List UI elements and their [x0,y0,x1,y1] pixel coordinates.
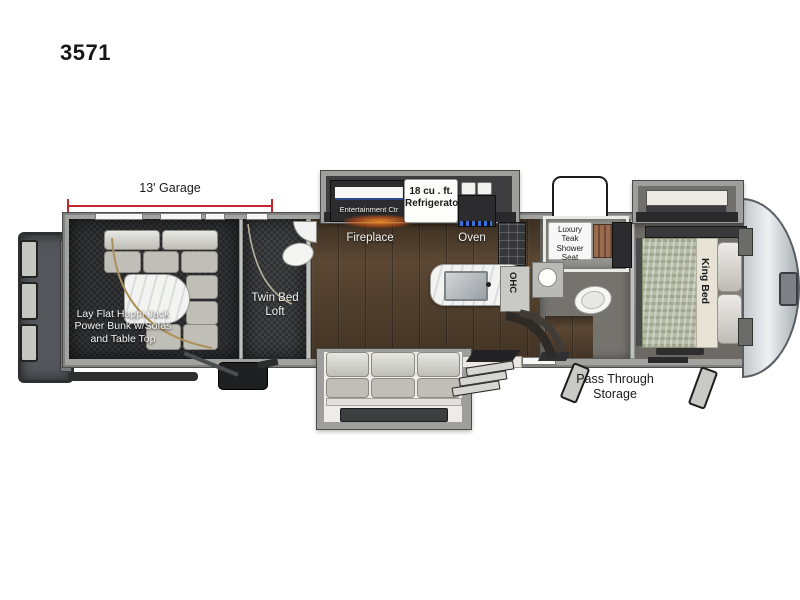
refrigerator-label: 18 cu . ft. Refrigerator [404,179,458,223]
floor-mat [538,352,570,361]
king-bed-mattress [642,238,698,348]
garage-dimension-tick-right [271,199,273,213]
faucet [486,282,491,287]
range-controls [460,221,492,226]
nightstand [738,228,753,256]
island-sink [444,271,488,301]
loft-label: Twin Bed Loft [243,292,307,319]
model-number: 3571 [60,40,150,66]
fireplace-label: Fireplace [330,232,410,246]
loft-floor [243,219,306,359]
garage-sofa-back [104,230,218,250]
sofa-slide-rug [340,408,448,422]
window-slot [205,213,225,220]
entertainment-label: Entertainment Ctr [330,206,408,215]
ohc-label: OHC [507,272,518,293]
dresser-top [646,190,728,206]
bedroom-slide-opening [636,212,738,222]
garage-side-cushions [186,275,218,325]
burner [461,182,476,195]
linen-closet [612,222,632,268]
oven-label: Oven [442,232,502,246]
floorplan-canvas: 3571 13' Garage Lay Flat Happi-Jack Powe… [0,0,800,600]
ramp-hinge [20,324,38,362]
pantry-cabinet [498,222,526,266]
ramp-bottom-rail [68,372,198,381]
window-slot [246,213,268,220]
garage-bunk-label: Lay Flat Happi-Jack Power Bunk w/Sofas a… [64,308,182,345]
nightstand [738,318,753,346]
pass-through-label: Pass Through Storage [556,372,674,402]
bath-sink [538,268,557,287]
burner [477,182,492,195]
ramp-hinge [20,240,38,278]
bedroom-rug [656,348,704,355]
shower-seat-label: Luxury Teak Shower Seat [548,222,592,260]
tv-screen [335,187,403,200]
bedroom-window-slot [648,357,688,363]
garage-dimension-line [67,205,273,207]
landing-gear-leg [688,366,719,410]
bed-frame-rail [645,226,747,238]
garage-sofa-seat [104,251,218,273]
sofa-seat-cushions [326,378,460,398]
ramp-hinge [20,282,38,320]
garage-dimension-label: 13' Garage [70,181,270,196]
sofa-back-cushions [326,352,460,377]
sofa-skirt [326,398,462,406]
garage-dimension-tick-left [67,199,69,213]
hitch-pin [779,272,798,306]
window-slot [160,213,202,220]
window-slot [95,213,143,220]
king-bed-label: King Bed [699,258,711,304]
